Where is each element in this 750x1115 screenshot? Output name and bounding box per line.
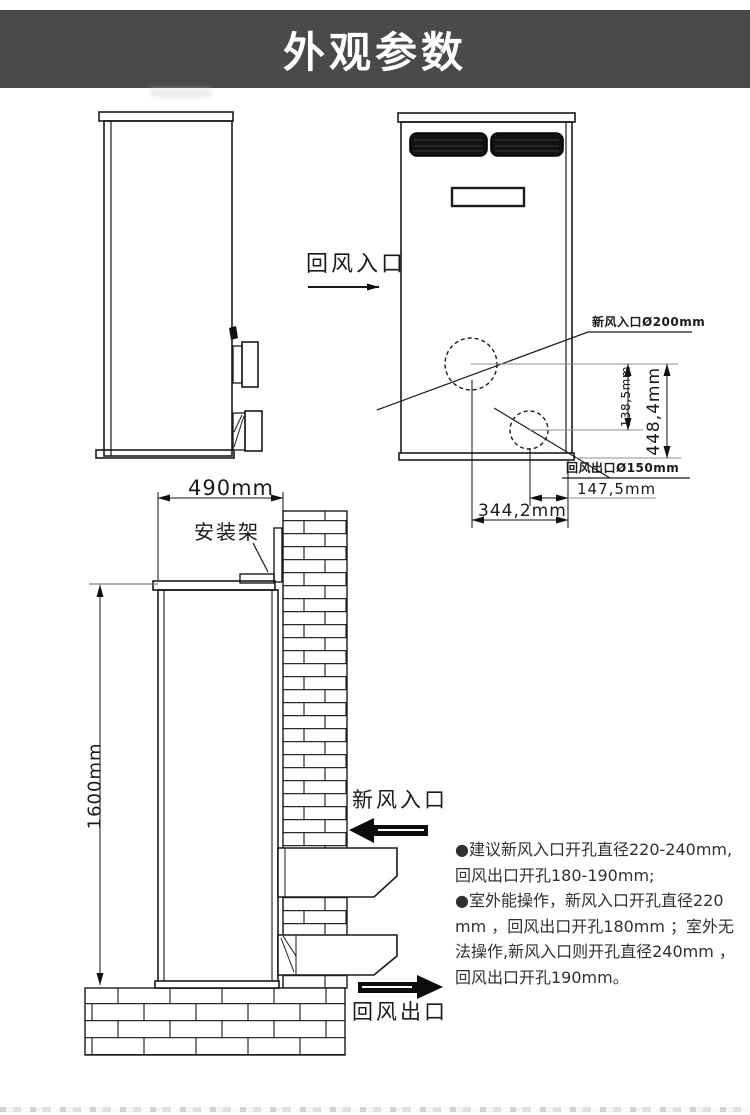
side-view-drawing <box>96 112 379 458</box>
side-upper-stub-neck <box>233 346 242 383</box>
dim-147-label: 147,5mm <box>577 481 656 498</box>
note-line: mm ，回风出口开孔180mm ；室外无 <box>455 914 750 940</box>
note-line: 法操作,新风入口则开孔直径240mm ， <box>455 939 750 965</box>
installation-drawing <box>85 511 443 1055</box>
fresh-air-inlet-label: 新风入口 <box>352 789 448 812</box>
return-air-hole-callout: 回风出口Ø150mm <box>566 462 679 475</box>
dim-138-label: 138,5mm <box>620 366 633 427</box>
air-grille-left <box>410 133 487 156</box>
page: 外观参数 <box>0 0 750 1115</box>
dim-448-label: 448,4mm <box>645 367 664 456</box>
side-body <box>104 121 232 456</box>
note-line: 回风出口开孔180-190mm; <box>455 863 750 889</box>
mounting-bracket-plate <box>274 528 282 582</box>
brick-floor <box>85 988 345 1055</box>
display-panel <box>452 188 524 206</box>
bracket-leader <box>253 543 268 572</box>
side-top-lid <box>99 112 233 121</box>
front-body <box>401 122 572 459</box>
installation-dimensions <box>89 492 283 985</box>
dim-490-label: 490mm <box>188 477 274 500</box>
note-line: ●建议新风入口开孔直径220-240mm, <box>455 837 750 863</box>
note-line: ●室外能操作，新风入口开孔直径220 <box>455 888 750 914</box>
side-hook <box>229 326 238 340</box>
return-air-outlet-label: 回风出口 <box>352 1001 448 1024</box>
dim-1600-label: 1600mm <box>86 742 106 829</box>
front-base <box>399 453 574 460</box>
side-lower-stub <box>245 411 262 451</box>
installed-unit-base <box>155 981 279 988</box>
side-upper-stub <box>242 342 258 387</box>
fresh-air-hole-callout: 新风入口Ø200mm <box>592 316 705 329</box>
installation-notes: ●建议新风入口开孔直径220-240mm, 回风出口开孔180-190mm; ●… <box>455 837 750 990</box>
bracket-label: 安装架 <box>194 521 260 543</box>
brick-wall <box>283 511 347 988</box>
fresh-air-duct <box>278 848 397 897</box>
return-air-inlet-label: 回风入口 <box>306 253 406 277</box>
air-grille-right <box>491 133 563 156</box>
front-top-lid <box>398 113 575 122</box>
installed-unit-body <box>158 590 278 988</box>
dim-344-label: 344,2mm <box>478 502 567 521</box>
note-line: 回风出口开孔190mm。 <box>455 965 750 991</box>
page-bottom-edge <box>0 1107 750 1112</box>
